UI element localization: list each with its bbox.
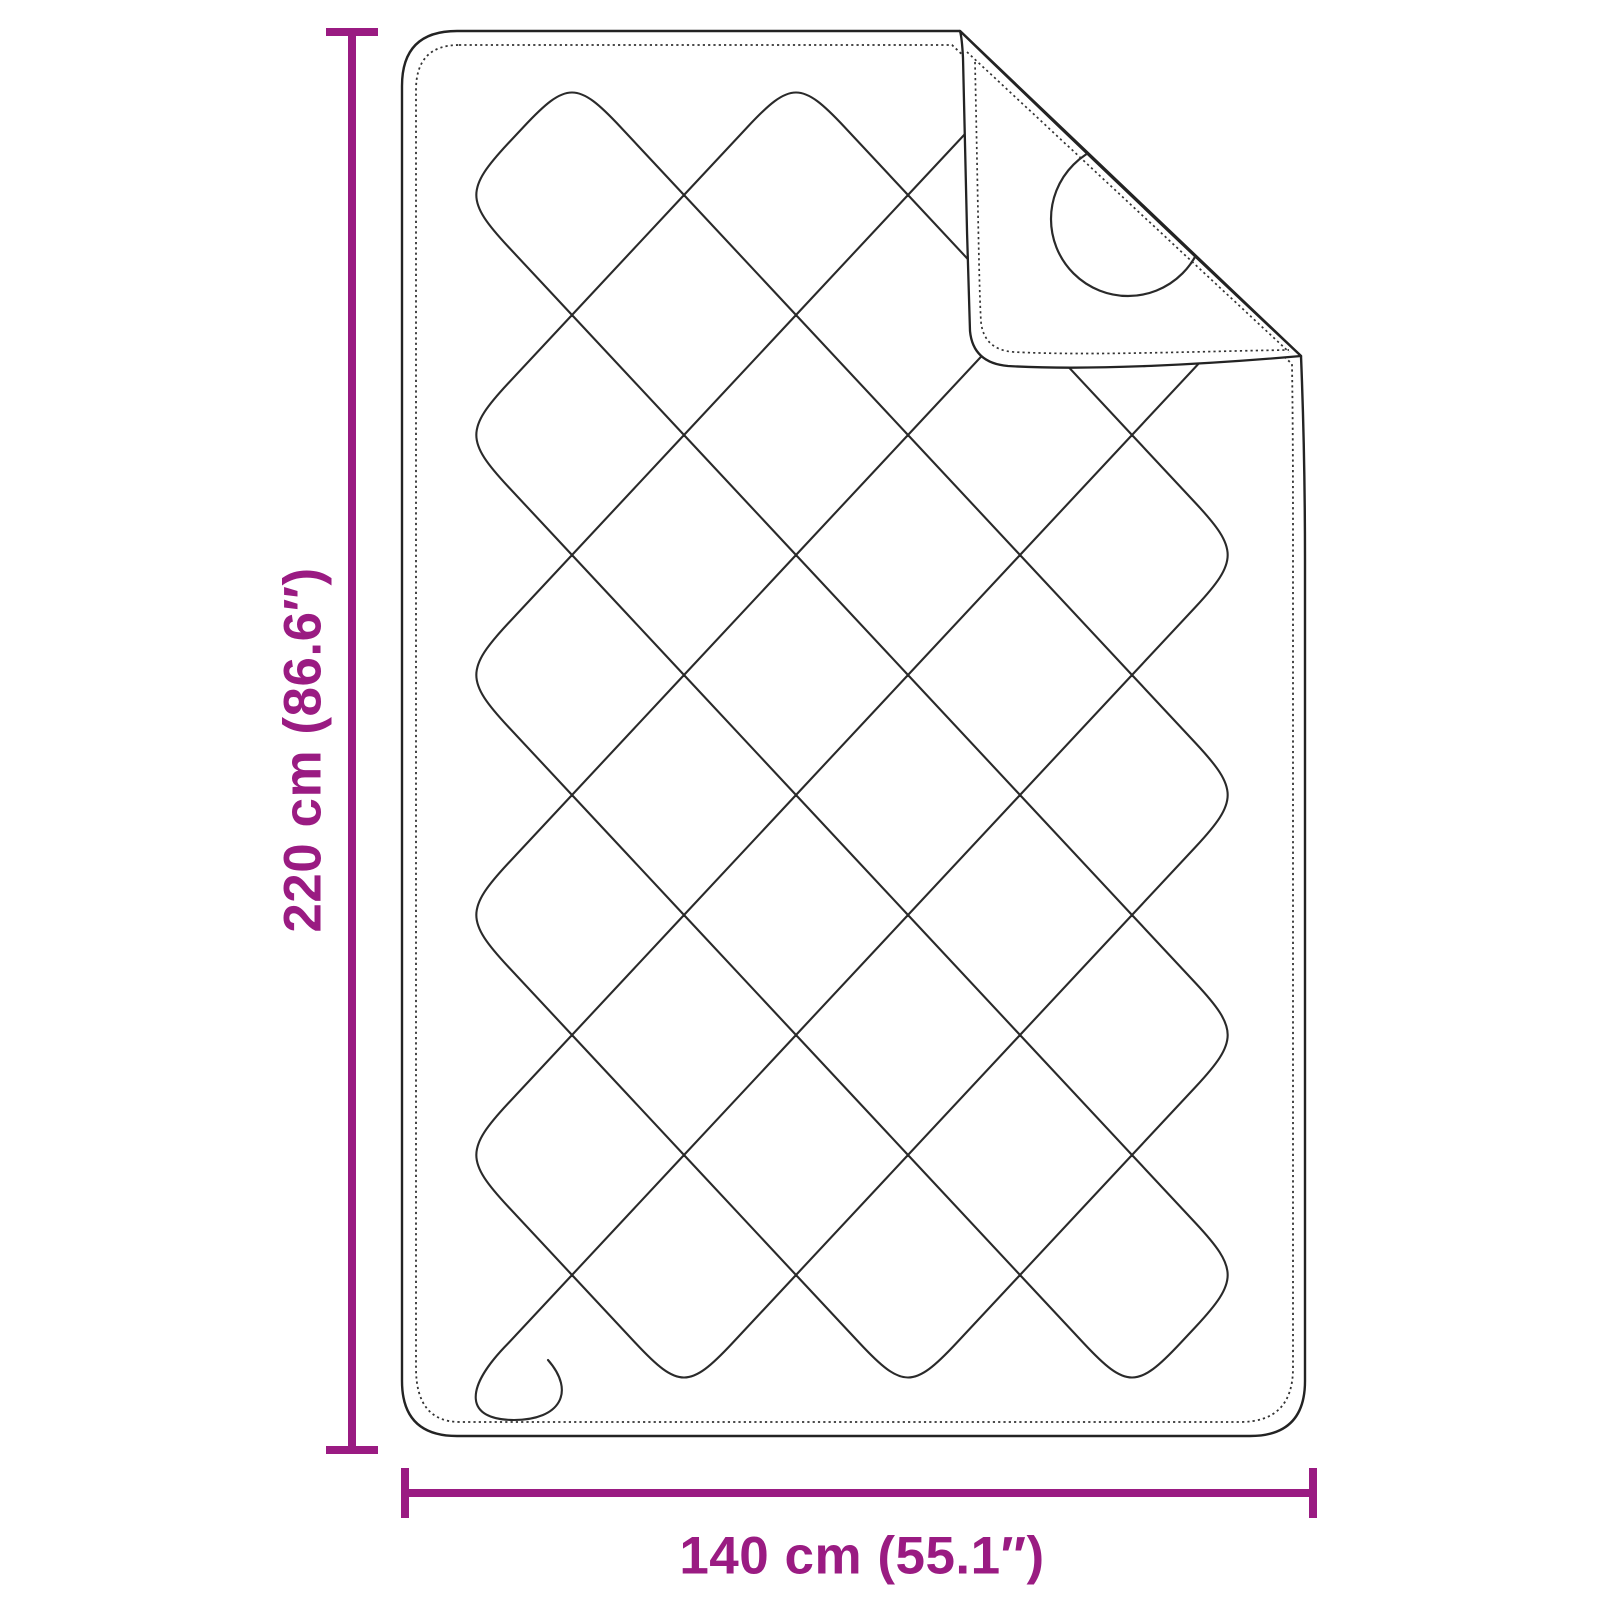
height-dimension-label: 220 cm (86.6″) (273, 567, 334, 932)
width-dimension-line (401, 1468, 1317, 1518)
height-cap-top (326, 28, 378, 36)
diagram-stage: 220 cm (86.6″) 140 cm (55.1″) (0, 0, 1600, 1600)
height-cap-bottom (326, 1446, 378, 1454)
folded-corner-flap (960, 31, 1301, 368)
width-cap-left (401, 1468, 409, 1518)
width-line (405, 1489, 1313, 1497)
width-dimension-label: 140 cm (55.1″) (679, 1526, 1044, 1587)
blanket-dimension-diagram (0, 0, 1600, 1600)
height-dimension-line (326, 28, 378, 1454)
width-cap-right (1309, 1468, 1317, 1518)
folded-corner (960, 31, 1301, 368)
height-line (348, 32, 356, 1450)
